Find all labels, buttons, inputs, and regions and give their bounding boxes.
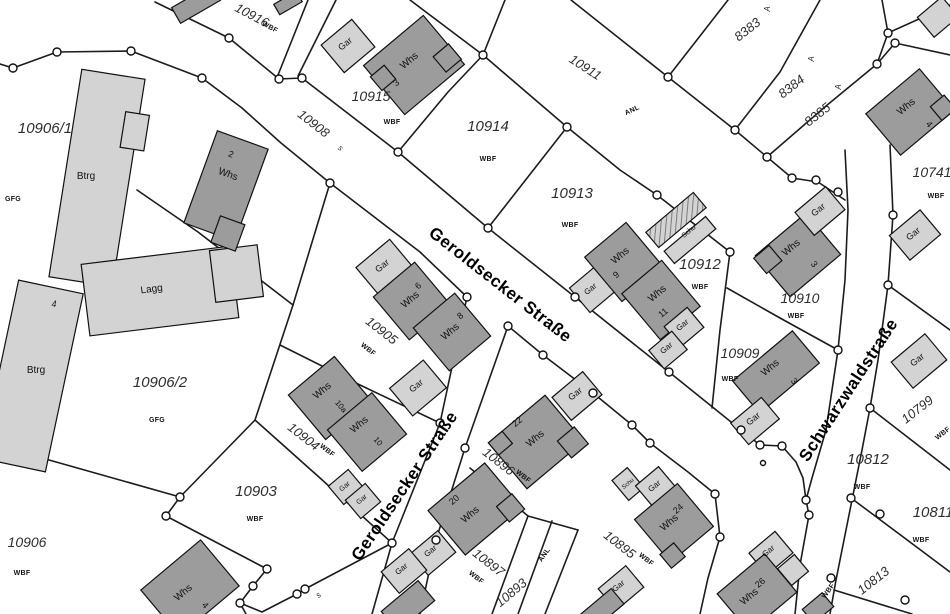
survey-point-marker	[461, 444, 469, 452]
survey-point-marker	[805, 511, 813, 519]
survey-point-marker	[628, 421, 636, 429]
annotation-label: A	[834, 84, 843, 90]
building-label: Btrg	[27, 365, 45, 376]
parcel-number-label: 10915	[352, 88, 391, 104]
survey-point-marker	[711, 490, 719, 498]
land-use-label: WBF	[247, 516, 264, 523]
survey-point-marker	[889, 211, 897, 219]
survey-point-marker	[293, 590, 301, 598]
land-use-label: WBF	[562, 222, 579, 229]
survey-point-marker	[653, 191, 661, 199]
survey-point-marker	[834, 346, 842, 354]
parcel-number-label: 10741	[913, 164, 950, 180]
survey-point-marker	[812, 176, 820, 184]
survey-point-marker	[761, 461, 766, 466]
survey-point-marker	[891, 39, 899, 47]
survey-point-marker	[394, 148, 402, 156]
parcel-number-label: 10811	[913, 504, 950, 521]
land-use-label: WBF	[692, 284, 709, 291]
survey-point-marker	[737, 426, 745, 434]
survey-point-marker	[778, 442, 786, 450]
survey-point-marker	[162, 512, 170, 520]
parcel-number-label: 10912	[679, 256, 721, 273]
annotation-label: A	[807, 56, 816, 62]
survey-point-marker	[249, 582, 257, 590]
building-label: Btrg	[77, 171, 95, 182]
parcel-number-label: 10914	[467, 118, 509, 135]
cadastral-map-canvas[interactable]: 10906/1109161090810915109141091310911838…	[0, 0, 950, 614]
annotation-label: A	[763, 6, 772, 12]
survey-point-marker	[563, 123, 571, 131]
survey-point-marker	[873, 60, 881, 68]
survey-point-marker	[463, 293, 471, 301]
land-use-label: GFG	[149, 417, 165, 424]
survey-point-marker	[646, 439, 654, 447]
survey-point-marker	[763, 153, 771, 161]
survey-point-marker	[388, 539, 396, 547]
survey-point-marker	[263, 565, 271, 573]
land-use-label: WBF	[788, 313, 805, 320]
survey-point-marker	[665, 368, 673, 376]
cadastral-map-viewport[interactable]: 10906/1109161090810915109141091310911838…	[0, 0, 950, 614]
survey-point-marker	[275, 75, 283, 83]
survey-point-marker	[726, 248, 734, 256]
parcel-number-label: 10903	[235, 483, 277, 500]
land-use-label: WBF	[722, 376, 739, 383]
survey-point-marker	[539, 351, 547, 359]
survey-point-marker	[484, 224, 492, 232]
land-use-label: WBF	[14, 570, 31, 577]
survey-point-marker	[301, 585, 309, 593]
parcel-number-label: 10910	[781, 290, 820, 306]
land-use-label: WBF	[913, 537, 930, 544]
survey-point-marker	[9, 64, 17, 72]
survey-point-marker	[298, 74, 306, 82]
parcel-number-label: 10906/1	[18, 120, 72, 137]
survey-point-marker	[716, 533, 724, 541]
land-use-label: WBF	[480, 156, 497, 163]
parcel-number-label: 10913	[551, 185, 593, 202]
survey-point-marker	[236, 599, 244, 607]
survey-point-marker	[176, 493, 184, 501]
survey-point-marker	[834, 188, 842, 196]
survey-point-marker	[225, 34, 233, 42]
survey-point-marker	[901, 596, 909, 604]
survey-point-marker	[884, 29, 892, 37]
survey-point-marker	[198, 74, 206, 82]
survey-point-marker	[756, 441, 764, 449]
annotation-label: 4	[51, 299, 56, 309]
survey-point-marker	[589, 389, 597, 397]
land-use-label: WBF	[384, 119, 401, 126]
land-use-label: WBF	[928, 193, 945, 200]
land-use-label: GFG	[5, 196, 21, 203]
survey-point-marker	[876, 510, 884, 518]
survey-point-marker	[802, 496, 810, 504]
survey-point-marker	[884, 281, 892, 289]
survey-point-marker	[326, 179, 334, 187]
survey-point-marker	[664, 73, 672, 81]
parcel-number-label: 10906	[8, 534, 47, 550]
survey-point-marker	[731, 126, 739, 134]
survey-point-marker	[571, 293, 579, 301]
survey-point-marker	[479, 51, 487, 59]
survey-point-marker	[53, 48, 61, 56]
parcel-number-label: 10812	[847, 451, 889, 468]
land-use-label: WBF	[854, 484, 871, 491]
survey-point-marker	[432, 536, 440, 544]
parcel-number-label: 10909	[721, 345, 760, 361]
survey-point-marker	[127, 47, 135, 55]
survey-point-marker	[866, 404, 874, 412]
survey-point-marker	[504, 322, 512, 330]
survey-point-marker	[788, 174, 796, 182]
survey-point-marker	[847, 494, 855, 502]
parcel-number-label: 10906/2	[133, 374, 188, 391]
survey-point-marker	[827, 574, 835, 582]
